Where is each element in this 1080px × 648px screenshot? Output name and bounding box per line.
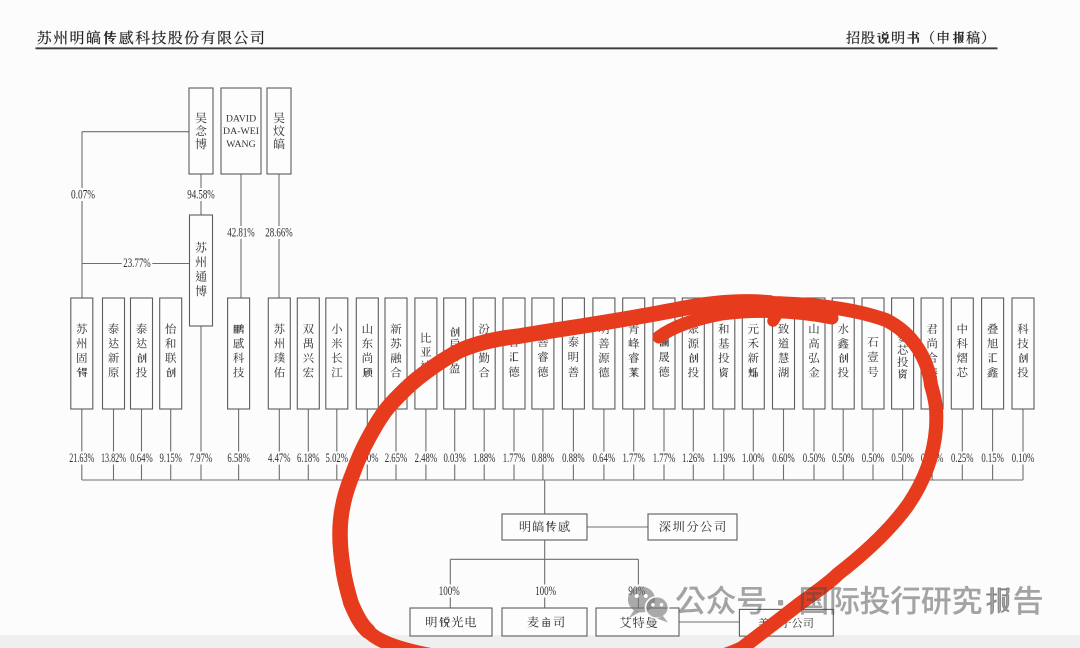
svg-text:6.58%: 6.58% (227, 450, 250, 465)
svg-text:WANG: WANG (226, 139, 255, 150)
svg-text:1.88%: 1.88% (473, 450, 496, 465)
svg-text:28.66%: 28.66% (265, 225, 293, 240)
svg-text:0.50%: 0.50% (832, 450, 855, 465)
svg-text:2.65%: 2.65% (385, 450, 408, 465)
svg-text:0.64%: 0.64% (593, 450, 616, 465)
svg-text:6.18%: 6.18% (297, 450, 320, 465)
svg-text:4.47%: 4.47% (268, 450, 291, 465)
svg-text:100%: 100% (439, 583, 460, 598)
svg-text:0.88%: 0.88% (532, 450, 555, 465)
svg-text:0.10%: 0.10% (1012, 450, 1035, 465)
svg-text:94.58%: 94.58% (187, 187, 215, 202)
svg-text:0.03%: 0.03% (443, 450, 466, 465)
svg-text:0.88%: 0.88% (562, 450, 585, 465)
svg-text:0.15%: 0.15% (981, 450, 1004, 465)
svg-text:DA-WEI: DA-WEI (223, 126, 259, 137)
svg-text:0.25%: 0.25% (951, 450, 974, 465)
svg-text:2.48%: 2.48% (415, 450, 438, 465)
svg-text:5.02%: 5.02% (326, 450, 349, 465)
svg-text:7.97%: 7.97% (190, 450, 213, 465)
svg-text:13.82%: 13.82% (101, 450, 126, 465)
svg-text:DAVID: DAVID (226, 113, 256, 124)
svg-text:23.77%: 23.77% (123, 255, 151, 270)
svg-text:1.26%: 1.26% (682, 450, 705, 465)
svg-text:1.77%: 1.77% (503, 450, 526, 465)
svg-text:1.77%: 1.77% (622, 450, 645, 465)
svg-text:42.81%: 42.81% (227, 225, 255, 240)
svg-text:0.50%: 0.50% (862, 450, 885, 465)
svg-text:100%: 100% (535, 583, 556, 598)
svg-text:1.77%: 1.77% (653, 450, 676, 465)
svg-text:21.63%: 21.63% (69, 450, 94, 465)
svg-text:1.19%: 1.19% (713, 450, 736, 465)
svg-text:0.07%: 0.07% (71, 187, 95, 202)
svg-text:9.15%: 9.15% (159, 450, 182, 465)
svg-text:0.60%: 0.60% (772, 450, 795, 465)
svg-text:0.50%: 0.50% (803, 450, 826, 465)
svg-text:0.64%: 0.64% (130, 450, 153, 465)
svg-text:0.50%: 0.50% (891, 450, 914, 465)
svg-text:1.00%: 1.00% (742, 450, 765, 465)
